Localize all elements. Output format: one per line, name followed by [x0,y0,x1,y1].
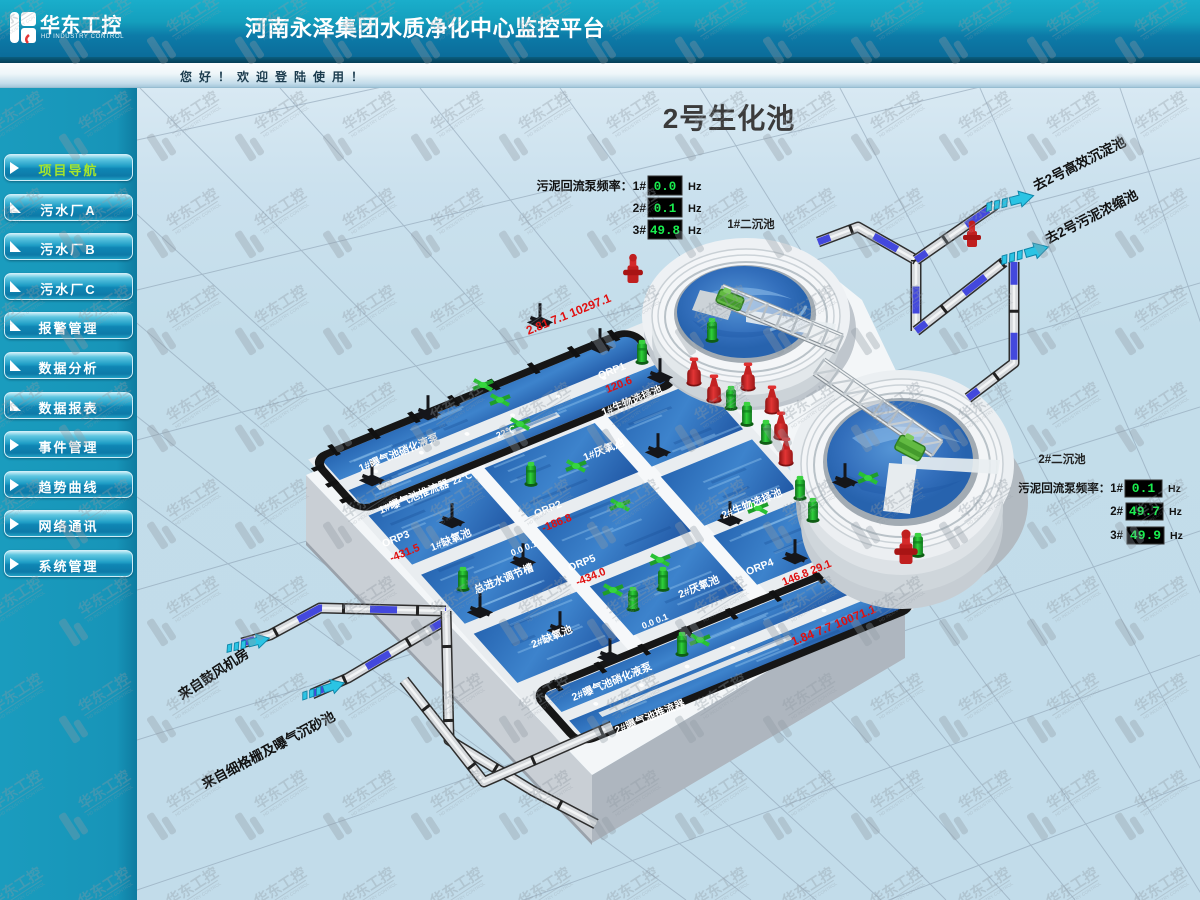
svg-text:污泥回流泵频率：1#: 污泥回流泵频率：1# [537,178,647,193]
svg-text:Hz: Hz [1168,483,1181,495]
svg-text:Hz: Hz [688,225,702,237]
svg-text:污泥回流泵频率：1#: 污泥回流泵频率：1# [1018,481,1123,495]
svg-text:49.9: 49.9 [1130,528,1161,543]
svg-text:2号生化池: 2号生化池 [663,103,796,134]
svg-text:Hz: Hz [1170,530,1183,542]
svg-text:3#: 3# [633,223,647,237]
svg-text:1#二沉池: 1#二沉池 [727,217,775,231]
svg-text:Hz: Hz [688,181,702,193]
svg-text:2#: 2# [1110,506,1123,518]
svg-text:Hz: Hz [688,203,702,215]
svg-text:3#: 3# [1110,530,1123,542]
svg-text:2#: 2# [633,201,647,215]
svg-text:0.0: 0.0 [654,180,677,194]
svg-text:0.1: 0.1 [1132,481,1156,496]
svg-text:0.1: 0.1 [654,202,677,216]
svg-text:Hz: Hz [1169,506,1182,518]
svg-text:2#二沉池: 2#二沉池 [1038,452,1086,466]
svg-text:49.8: 49.8 [650,224,680,238]
svg-text:49.7: 49.7 [1129,504,1160,519]
